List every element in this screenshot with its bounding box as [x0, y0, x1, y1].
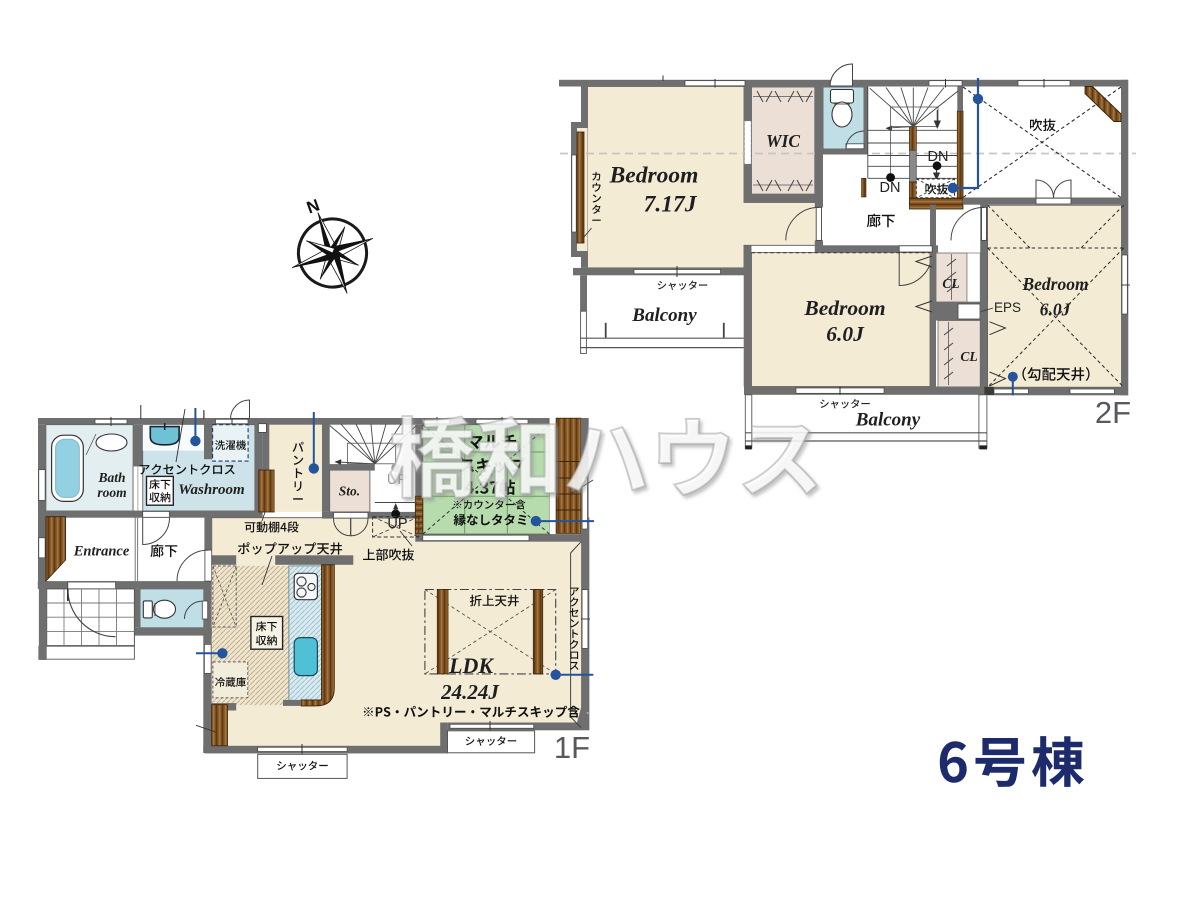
svg-text:2F: 2F — [1095, 395, 1131, 430]
svg-text:6.0J: 6.0J — [1040, 300, 1072, 320]
svg-text:Washroom: Washroom — [178, 482, 244, 498]
svg-text:6.0J: 6.0J — [826, 322, 865, 346]
svg-text:Bath: Bath — [97, 470, 125, 485]
svg-text:Entrance: Entrance — [73, 543, 130, 559]
svg-text:CL: CL — [942, 276, 959, 291]
svg-text:Bedroom: Bedroom — [609, 163, 699, 189]
svg-text:DN: DN — [880, 180, 901, 196]
svg-text:room: room — [97, 485, 126, 500]
svg-text:UP: UP — [387, 516, 407, 532]
svg-text:N: N — [304, 195, 322, 217]
svg-text:24.24J: 24.24J — [440, 680, 500, 704]
svg-text:7.17J: 7.17J — [644, 192, 698, 218]
svg-text:LDK: LDK — [448, 653, 494, 678]
svg-text:Sto.: Sto. — [339, 484, 360, 499]
svg-text:Balcony: Balcony — [855, 410, 921, 431]
svg-text:CL: CL — [960, 349, 977, 364]
svg-text:WIC: WIC — [766, 131, 800, 151]
svg-text:Bedroom: Bedroom — [1021, 274, 1088, 294]
svg-text:Balcony: Balcony — [631, 305, 697, 326]
svg-text:1F: 1F — [554, 730, 590, 765]
svg-text:Bedroom: Bedroom — [803, 296, 885, 320]
svg-text:EPS: EPS — [994, 300, 1021, 315]
